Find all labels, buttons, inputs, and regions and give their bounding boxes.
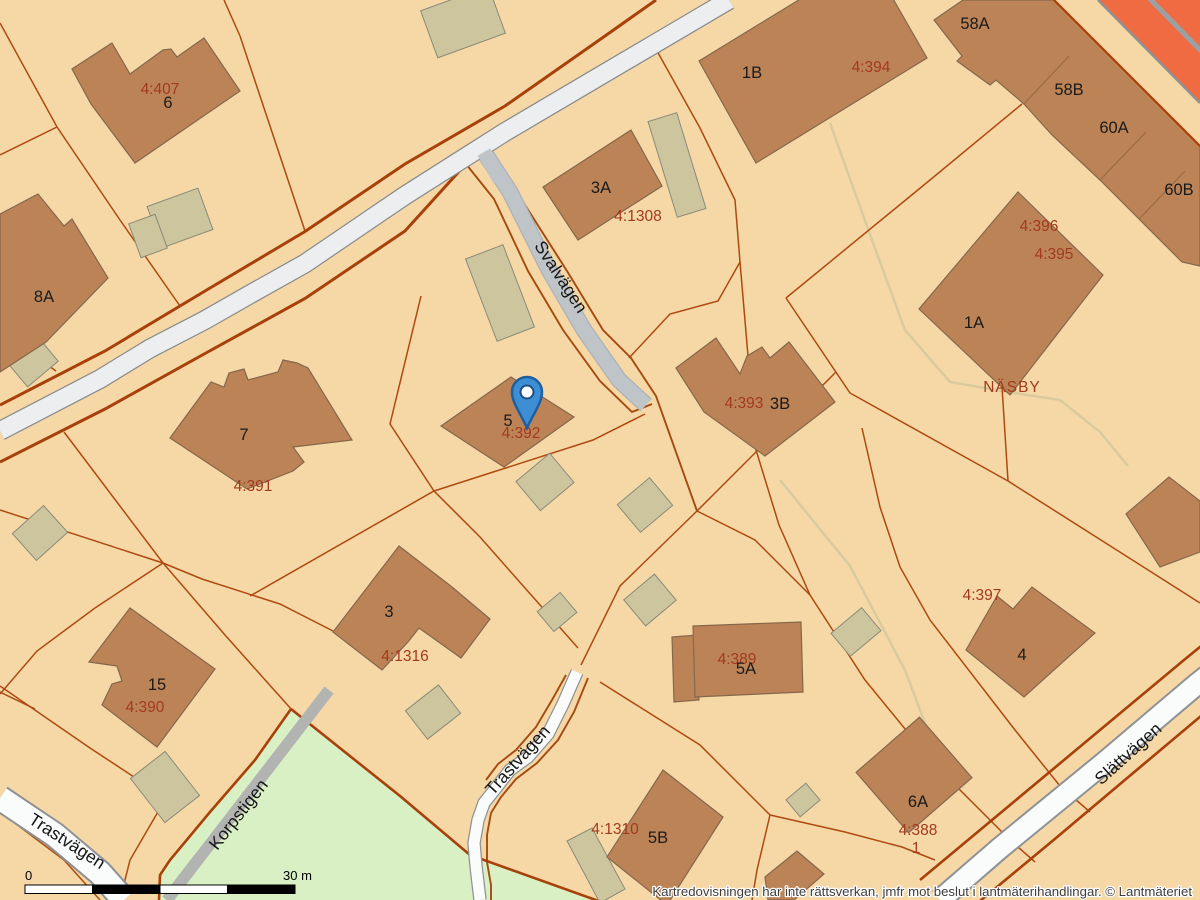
- svg-text:3: 3: [384, 603, 393, 621]
- svg-text:60B: 60B: [1164, 181, 1193, 199]
- svg-text:3B: 3B: [770, 395, 790, 413]
- svg-text:4:393: 4:393: [725, 395, 764, 412]
- svg-text:4:395: 4:395: [1035, 246, 1074, 263]
- svg-text:4:388: 4:388: [899, 822, 938, 839]
- svg-text:4:1310: 4:1310: [591, 821, 639, 838]
- svg-text:58A: 58A: [960, 15, 989, 33]
- svg-text:4:394: 4:394: [852, 59, 891, 76]
- svg-text:1: 1: [912, 840, 921, 857]
- svg-text:60A: 60A: [1099, 119, 1128, 137]
- svg-text:7: 7: [239, 426, 248, 444]
- svg-text:4:390: 4:390: [126, 699, 165, 716]
- svg-text:3A: 3A: [591, 179, 611, 197]
- svg-text:6: 6: [163, 94, 172, 112]
- svg-text:1B: 1B: [742, 64, 762, 82]
- svg-text:1A: 1A: [964, 314, 984, 332]
- svg-text:4:392: 4:392: [502, 425, 541, 442]
- svg-text:58B: 58B: [1054, 81, 1083, 99]
- svg-text:8A: 8A: [34, 288, 54, 306]
- svg-text:6A: 6A: [908, 793, 928, 811]
- svg-text:4:407: 4:407: [141, 81, 180, 98]
- svg-text:4:391: 4:391: [234, 478, 273, 495]
- svg-text:NÄSBY: NÄSBY: [983, 379, 1041, 396]
- svg-text:Kartredovisningen har inte rät: Kartredovisningen har inte rättsverkan, …: [652, 884, 1192, 899]
- svg-text:4:1308: 4:1308: [614, 208, 661, 225]
- svg-text:4:397: 4:397: [963, 587, 1002, 604]
- svg-text:5B: 5B: [648, 829, 668, 847]
- svg-text:0: 0: [25, 868, 32, 883]
- svg-text:15: 15: [148, 676, 166, 694]
- svg-text:4:396: 4:396: [1020, 218, 1059, 235]
- svg-text:4:1316: 4:1316: [381, 648, 428, 665]
- svg-text:5A: 5A: [736, 660, 756, 678]
- svg-text:30 m: 30 m: [283, 868, 312, 883]
- svg-text:4: 4: [1017, 646, 1026, 664]
